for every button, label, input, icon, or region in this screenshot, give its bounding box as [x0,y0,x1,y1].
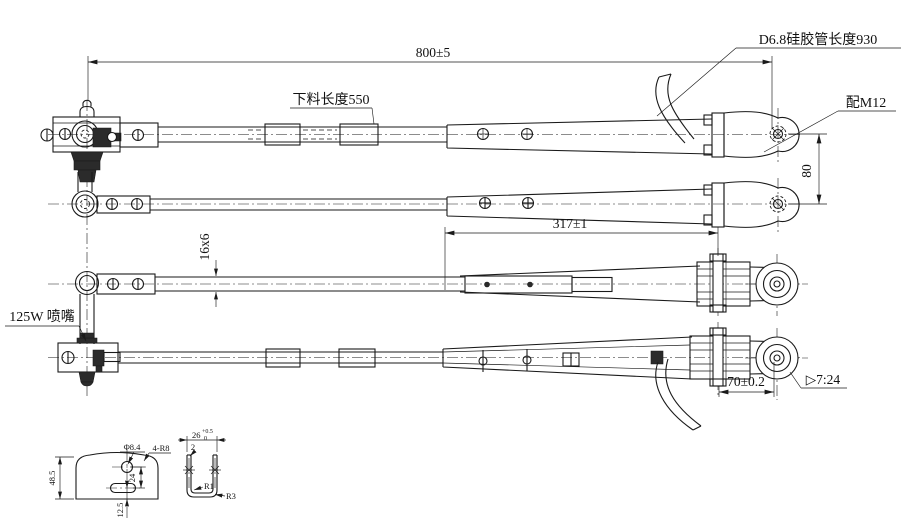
plate-height-label: 48.5 [47,471,57,486]
channel-thickness-label: 2 [191,442,195,452]
plate-dim24-label: 24 [127,473,137,482]
rivet [523,198,534,209]
blank-length-label: 下料长度550 [293,92,370,108]
dimension-800: 800±5 [88,45,772,128]
hose-fitting [651,351,663,364]
shaft-stack [71,152,103,161]
dim-80-label: 80 [799,164,814,178]
pivot-head [756,337,798,379]
arm-1-assembly [41,74,799,182]
leader-taper-ratio: ▷7:24 [790,372,847,388]
dim-70-label: 70±0.2 [727,374,765,389]
nozzle-label: 125W 喷嘴 [9,309,74,325]
detail-channel: 26 +0.5 0 2 R1 R3 [178,429,236,501]
m12-label: 配M12 [846,96,886,111]
rivet [521,128,533,140]
dim-16x6-label: 16x6 [197,233,212,260]
plate-corner-radius-label: 4-R8 [153,443,170,453]
plate-hole-dia-label: Φ8.4 [124,442,142,452]
channel-outer-radius-label: R3 [226,491,236,501]
dimension-317: 317±1 [445,216,718,290]
rivet [477,128,489,140]
dimension-80: 80 [788,134,827,204]
nozzle-stack [77,338,97,343]
dim-800-label: 800±5 [416,45,451,60]
slide-sleeve [465,276,572,293]
channel-tol-lower: 0 [204,436,207,442]
arm-2-assembly [72,172,799,227]
channel-tol-upper: +0.5 [202,429,213,435]
engineering-drawing: 800±5 D6.8硅胶管长度930 下料长度550 配M12 80 317±1… [0,0,904,528]
adjust-screw [523,349,531,371]
hinge-bolt [713,254,723,312]
leader-nozzle: 125W 喷嘴 [5,309,86,341]
silicone-tube-label: D6.8硅胶管长度930 [759,31,878,48]
arm-3-assembly [76,254,799,344]
bolt-stack [79,372,95,382]
hinge-bolt [713,328,723,386]
arm-head [724,182,799,228]
pivot-head [756,263,798,305]
drawing-canvas: 800±5 D6.8硅胶管长度930 下料长度550 配M12 80 317±1… [0,0,904,528]
silicone-hose [656,77,685,143]
silicone-hose [656,362,693,430]
taper-ratio-label: ▷7:24 [806,372,841,387]
elbow-fitting [93,350,104,366]
detail-plate: 48.5 Φ8.4 4-R8 24 12.5 [47,442,171,519]
channel-inner-radius-label: R1 [204,481,214,491]
channel-width-label: 26 [192,430,201,440]
leader-m12: 配M12 [764,96,896,152]
dim-317-label: 317±1 [553,216,587,231]
centerlines [48,100,808,400]
leader-blank-length: 下料长度550 [290,92,374,124]
plate-dim125-label: 12.5 [115,503,125,518]
arm-4-assembly [58,328,798,430]
dimension-16x6: 16x6 [197,233,216,307]
rivet [480,198,491,209]
